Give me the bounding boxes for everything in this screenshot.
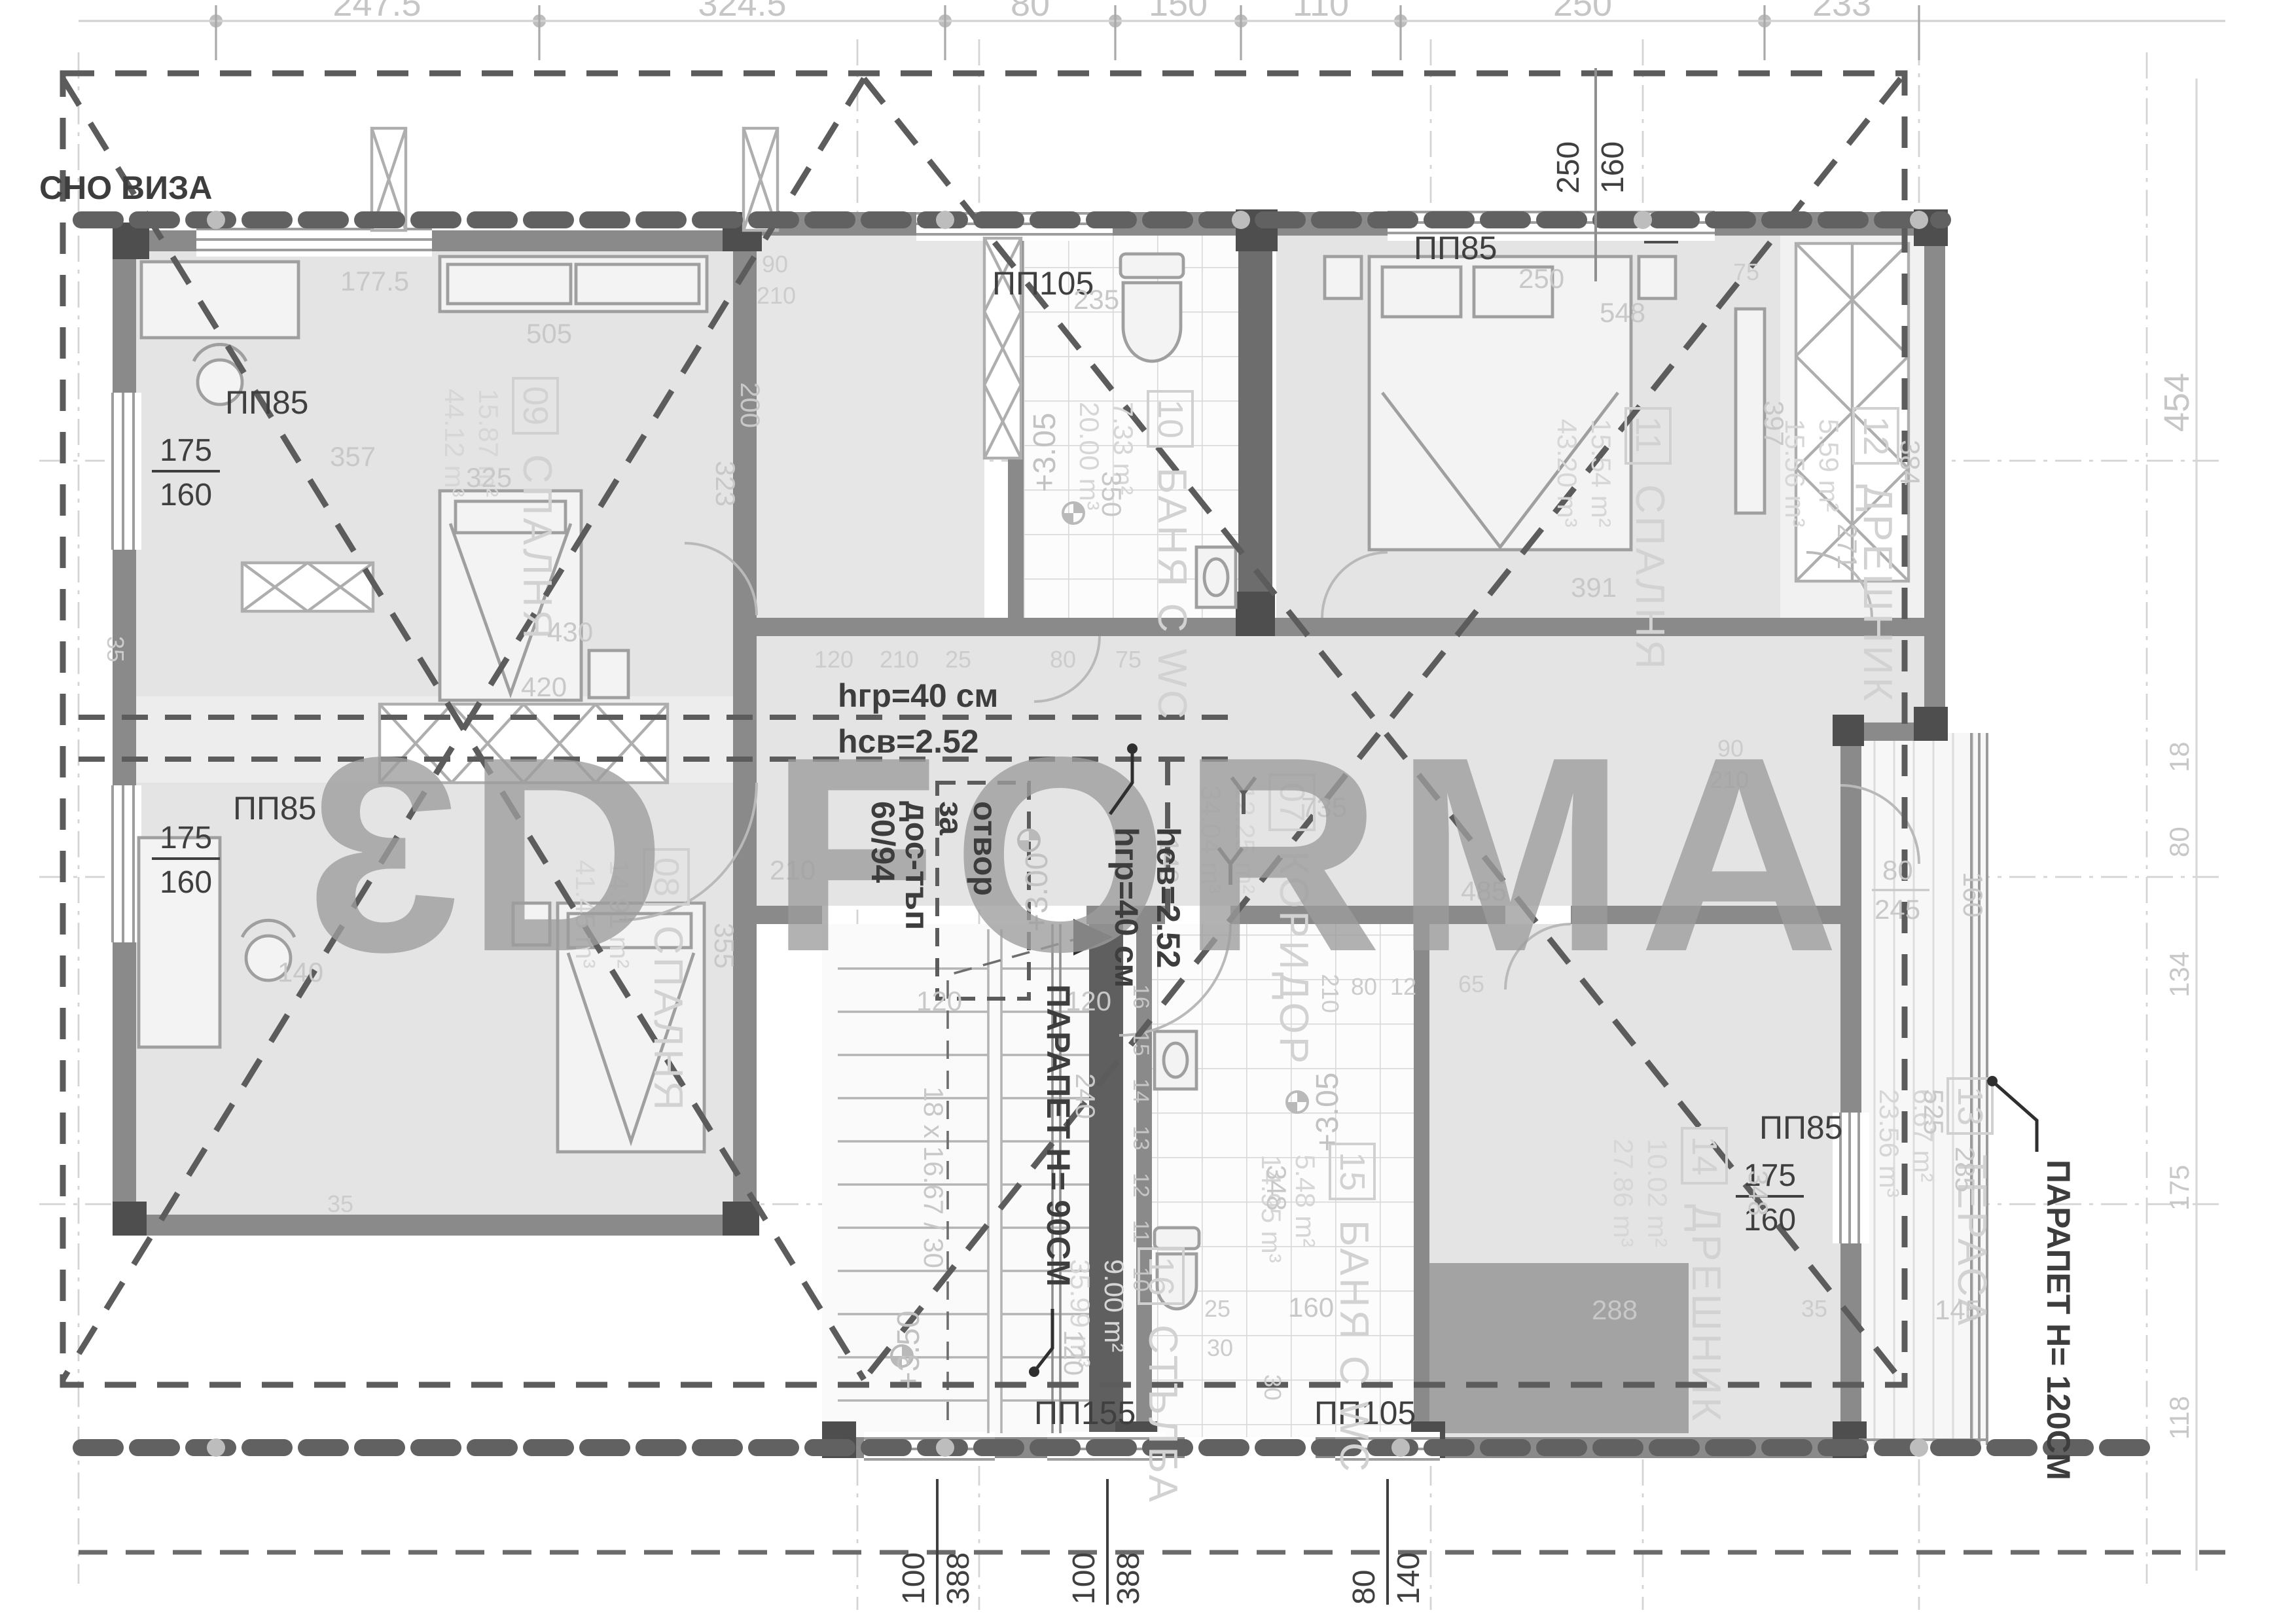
step-12: 12 — [1128, 1173, 1153, 1198]
dim-145: 145 — [1935, 1294, 1981, 1325]
stair-formula: 18 х 16.67 / 30 — [918, 1086, 949, 1268]
dim-348-r14: 348 — [1743, 1170, 1774, 1216]
window-l1-h: 160 — [160, 478, 212, 512]
wall-left — [113, 230, 136, 1215]
room-14-name: ДРЕШНИК — [1683, 1204, 1729, 1423]
dim-384: 384 — [1895, 440, 1926, 486]
level-stair: +3.50 — [891, 1311, 926, 1390]
window-left-upper — [105, 393, 141, 550]
dresser-room09 — [440, 257, 707, 312]
dim-200: 200 — [735, 382, 766, 428]
dim-325: 325 — [466, 462, 512, 493]
dim-top-233: 233 — [1812, 0, 1871, 24]
room-09-name: СПАЛНЯ — [514, 454, 560, 641]
wall-right-upper — [1924, 212, 1945, 741]
sink-bath15 — [1155, 1031, 1196, 1089]
dim-250-r11: 250 — [1518, 263, 1564, 294]
dim-35-left: 35 — [102, 636, 129, 662]
window-tr-height: 160 — [1596, 141, 1630, 194]
parapet-terrace-text: ПАРАПЕТ H= 120СМ — [2040, 1160, 2077, 1480]
dim-top-80: 80 — [1011, 0, 1050, 24]
dim-30-b: 30 — [1259, 1374, 1286, 1400]
dim-525: 525 — [1918, 1089, 1949, 1135]
room-13-volume: 23.56 m³ — [1874, 1089, 1905, 1198]
step-10: 10 — [1128, 1267, 1153, 1292]
room-09-num: 09 — [516, 386, 555, 425]
dim-285: 285 — [1950, 1147, 1981, 1192]
level-symbol-bath10 — [1063, 503, 1084, 524]
window-b1-h: 388 — [941, 1552, 976, 1605]
room-15-num: 15 — [1333, 1152, 1372, 1191]
window-b2-w: 100 — [1067, 1552, 1102, 1605]
watermark: 3 D FORMA — [293, 699, 1852, 1009]
dim-160-ter: 160 — [1958, 872, 1988, 918]
dim-right-18: 18 — [2164, 741, 2195, 772]
dim-348-b15: 348 — [1261, 1165, 1292, 1211]
note-hgr-1: hгр=40 см — [838, 677, 998, 714]
step-14: 14 — [1128, 1079, 1153, 1103]
level-bath10: +3.05 — [1028, 413, 1062, 492]
dim-357: 357 — [330, 441, 376, 472]
room-12-name: ДРЕШНИК — [1855, 484, 1900, 704]
window-b1-w: 100 — [897, 1552, 931, 1605]
level-bath15: +3.05 — [1310, 1073, 1345, 1152]
tag-pp155: ПП155 — [1034, 1395, 1136, 1431]
dim-80-ter: 80 — [1882, 855, 1913, 885]
wall-bottom-left-wing — [113, 1215, 757, 1236]
dim-120-cor: 120 — [814, 646, 853, 673]
note-opening-1: отвор — [967, 801, 1003, 896]
dim-right-454: 454 — [2157, 373, 2197, 432]
tag-pp85-right: ПП85 — [1759, 1109, 1843, 1146]
dim-271: 271 — [1832, 524, 1863, 569]
dim-420: 420 — [521, 671, 567, 702]
dim-397: 397 — [1759, 401, 1789, 446]
dim-120-stair-c: 120 — [1058, 1330, 1089, 1376]
room-16-area: 9.00 m² — [1099, 1259, 1130, 1352]
desk-room09 — [141, 262, 298, 338]
dim-top-110: 110 — [1293, 0, 1349, 24]
room-15-name: БАНЯ С WC — [1331, 1220, 1376, 1474]
room-16-name: СТЪЛБА — [1140, 1325, 1185, 1505]
room-12-num: 12 — [1856, 416, 1895, 455]
dim-80-cor: 80 — [1050, 646, 1076, 673]
dim-288: 288 — [1592, 1294, 1638, 1325]
room-14-num: 14 — [1685, 1136, 1724, 1175]
dim-right: 454 18 80 134 175 118 — [2157, 79, 2197, 1571]
dim-right-80: 80 — [2164, 827, 2195, 857]
dim-235: 235 — [1073, 284, 1119, 315]
nightstand-room09 — [589, 651, 628, 698]
note-hgr-vert-2: hсв=2.52 — [1150, 827, 1187, 969]
dim-25-b15: 25 — [1204, 1295, 1230, 1322]
nightstand-room11-right — [1639, 257, 1676, 298]
dim-430: 430 — [547, 616, 593, 647]
room-13-num: 13 — [1950, 1086, 1990, 1126]
tag-pp85-top-right: ПП85 — [1414, 230, 1498, 266]
room-11-num: 11 — [1628, 416, 1668, 453]
note-opening-3: дос-тъп — [899, 801, 935, 930]
visa-note: СНО ВИЗА — [39, 169, 212, 206]
dim-160-b15: 160 — [1288, 1292, 1334, 1323]
note-opening-2: за — [933, 801, 969, 836]
window-l1-w: 175 — [160, 433, 212, 468]
dim-25-cor: 25 — [945, 646, 971, 673]
room-14-closet-block — [1427, 1263, 1689, 1433]
room-09-volume: 44.12 m³ — [439, 389, 470, 497]
dim-75-cor: 75 — [1115, 646, 1141, 673]
parapet-stair-text: ПАРАПЕТ H= 90СМ — [1040, 984, 1077, 1287]
window-left-lower — [105, 785, 141, 942]
room-11-name: СПАЛНЯ — [1627, 484, 1672, 671]
room-10-num: 10 — [1151, 399, 1190, 438]
room-12-area: 5.59 m² — [1814, 419, 1844, 512]
dim-right-118: 118 — [2164, 1396, 2195, 1440]
room-11-volume: 43.20 m³ — [1552, 419, 1583, 527]
dim-top-324-5: 324.5 — [698, 0, 786, 24]
room-14-volume: 27.86 m³ — [1608, 1139, 1639, 1247]
wall-bath10-right — [1238, 233, 1272, 636]
dim-top-247-5: 247.5 — [332, 0, 421, 24]
floor-plan-page: 247.5 324.5 80 150 110 250 233 250 160 4… — [0, 0, 2296, 1623]
window-b2-h: 388 — [1111, 1552, 1146, 1605]
dim-door-90: 90 — [762, 251, 788, 277]
floor-plan-svg: 247.5 324.5 80 150 110 250 233 250 160 4… — [0, 0, 2296, 1623]
level-symbol-bath15 — [1287, 1092, 1308, 1113]
dim-35-bl: 35 — [327, 1190, 353, 1217]
dim-top: 247.5 324.5 80 150 110 250 233 — [79, 0, 2225, 60]
watermark-3: 3 — [293, 699, 461, 1009]
step-15: 15 — [1128, 1031, 1153, 1056]
window-b3-h: 140 — [1391, 1552, 1426, 1605]
toilet-bath10 — [1121, 254, 1183, 361]
dim-548: 548 — [1600, 297, 1645, 328]
dim-245-ter: 245 — [1874, 894, 1920, 925]
window-tr-width: 250 — [1551, 141, 1586, 194]
dim-350: 350 — [1096, 471, 1127, 517]
dim-505: 505 — [526, 318, 572, 349]
dim-35-r14: 35 — [1801, 1295, 1827, 1322]
wall-corridor-top — [754, 618, 1924, 636]
nightstand-room11-left — [1325, 257, 1361, 298]
dim-323: 323 — [710, 461, 741, 507]
sink-bath10 — [1196, 547, 1236, 607]
note-hgr-2: hсв=2.52 — [838, 723, 979, 760]
note-hgr-vert-1: hгр=40 см — [1108, 827, 1145, 988]
room-10-name: БАНЯ С WC — [1149, 467, 1194, 722]
bed-room09 — [440, 491, 581, 700]
dim-door-210: 210 — [757, 282, 796, 309]
window-l2-h: 160 — [160, 865, 212, 900]
room-15-area: 5.48 m² — [1290, 1154, 1321, 1247]
dim-30-a: 30 — [1207, 1334, 1233, 1361]
note-opening-4: 60/94 — [865, 801, 901, 883]
dim-right-175: 175 — [2164, 1165, 2195, 1211]
dim-177-5: 177.5 — [340, 266, 409, 296]
closet-room09 — [242, 563, 373, 611]
step-13: 13 — [1128, 1126, 1153, 1150]
window-l2-w: 175 — [160, 821, 212, 855]
note-parapet-terrace: ПАРАПЕТ H= 120СМ — [1987, 1076, 2077, 1480]
window-b3-w: 80 — [1347, 1570, 1382, 1605]
dim-391: 391 — [1571, 572, 1617, 603]
dim-75-r11: 75 — [1733, 259, 1759, 285]
dim-210-cor: 210 — [880, 646, 919, 673]
tag-pp85-top-left: ПП85 — [225, 384, 309, 421]
step-11: 11 — [1128, 1220, 1153, 1243]
dim-right-134: 134 — [2164, 952, 2195, 997]
dim-top-150: 150 — [1149, 0, 1208, 24]
room-11-area: 15.54 m² — [1586, 419, 1617, 527]
room-14-area: 10.02 m² — [1642, 1139, 1673, 1247]
dim-top-250: 250 — [1553, 0, 1612, 24]
